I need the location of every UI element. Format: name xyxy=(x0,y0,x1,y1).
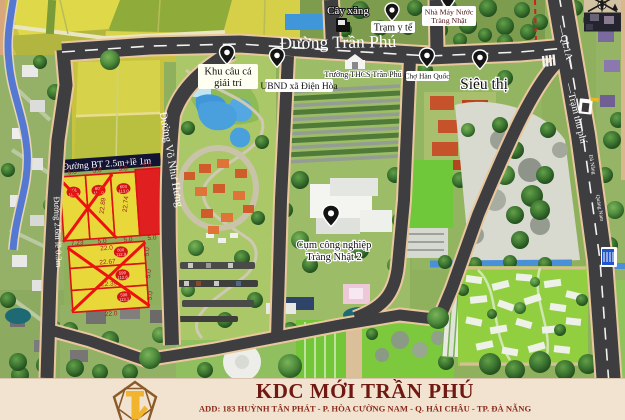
svg-text:Tràng Nhật 2: Tràng Nhật 2 xyxy=(306,252,362,263)
svg-text:5.0: 5.0 xyxy=(147,234,157,242)
svg-text:22.67: 22.67 xyxy=(99,258,116,266)
svg-text:7.23: 7.23 xyxy=(71,239,84,247)
svg-text:giải trí: giải trí xyxy=(214,78,242,89)
svg-text:Đường Trần Phú: Đường Trần Phú xyxy=(279,31,397,53)
svg-text:Khu câu cá: Khu câu cá xyxy=(204,67,252,78)
svg-text:Cây xăng: Cây xăng xyxy=(327,5,369,17)
svg-text:22.0: 22.0 xyxy=(100,244,113,252)
svg-text:5.0: 5.0 xyxy=(67,169,77,177)
svg-text:22.0: 22.0 xyxy=(105,310,118,318)
svg-text:Trường THCS Trần Phú: Trường THCS Trần Phú xyxy=(324,70,401,79)
svg-text:ADD: 183 HUỲNH TÂN PHÁT - P. H: ADD: 183 HUỲNH TÂN PHÁT - P. HÒA CƯỜNG N… xyxy=(199,404,532,414)
svg-text:Siêu thị: Siêu thị xyxy=(460,76,508,93)
svg-text:5.0: 5.0 xyxy=(142,162,152,170)
svg-text:112.9: 112.9 xyxy=(116,252,127,258)
svg-text:113.1: 113.1 xyxy=(119,296,130,302)
svg-text:113.0: 113.0 xyxy=(118,188,129,194)
svg-text:Tràng Nhật: Tràng Nhật xyxy=(431,16,467,25)
svg-text:5.0: 5.0 xyxy=(145,269,153,279)
svg-text:5.0: 5.0 xyxy=(92,167,102,175)
svg-text:112.6: 112.6 xyxy=(117,274,128,280)
svg-text:UBND xã Điện Hòa: UBND xã Điện Hòa xyxy=(260,82,338,92)
svg-text:5.0: 5.0 xyxy=(147,290,155,300)
svg-text:KDC MỚI TRẦN PHÚ: KDC MỚI TRẦN PHÚ xyxy=(256,379,474,403)
svg-text:5.0: 5.0 xyxy=(123,236,133,244)
svg-text:Cụm công nghiệp: Cụm công nghiệp xyxy=(297,240,372,251)
svg-text:Chợ Hàn Quốc: Chợ Hàn Quốc xyxy=(404,72,450,81)
svg-text:Trạm y tế: Trạm y tế xyxy=(374,23,413,34)
svg-text:5.0: 5.0 xyxy=(143,247,151,257)
svg-text:5.0: 5.0 xyxy=(118,165,128,173)
